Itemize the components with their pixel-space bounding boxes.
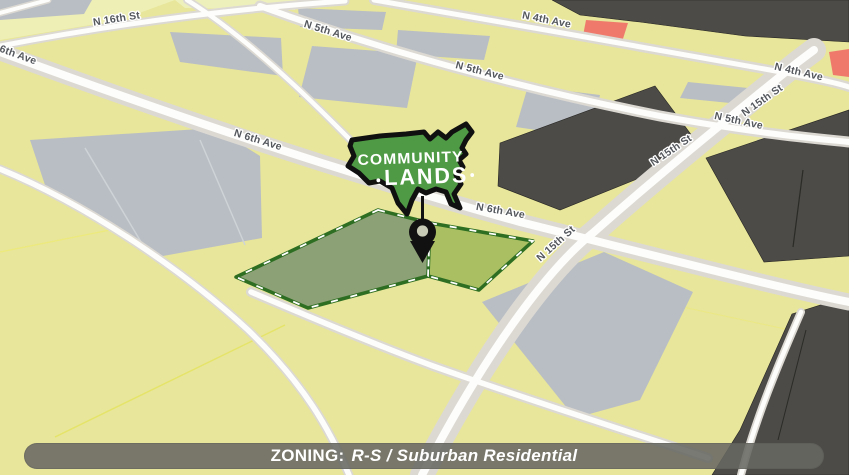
logo-text-line2: LANDS (384, 162, 469, 190)
map-canvas[interactable]: N 16th St 6th Ave N 5th Ave N 5th Ave N … (0, 0, 849, 475)
zoning-status-bar: ZONING: R-S / Suburban Residential (24, 443, 824, 469)
pin-hole (417, 225, 428, 236)
zoning-label: ZONING: (271, 446, 345, 466)
map-viewport[interactable]: N 16th St 6th Ave N 5th Ave N 5th Ave N … (0, 0, 849, 475)
zoning-value: R-S / Suburban Residential (351, 446, 577, 466)
